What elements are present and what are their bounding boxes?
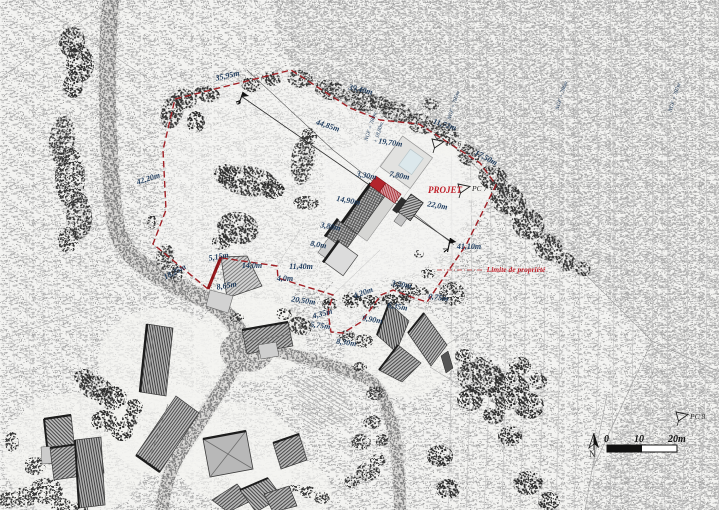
svg-text:11,40m: 11,40m <box>289 262 313 271</box>
svg-text:PC 8: PC 8 <box>689 412 705 421</box>
svg-text:N: N <box>589 449 596 459</box>
svg-text:14,0m: 14,0m <box>242 261 262 270</box>
svg-text:Limite de propriété: Limite de propriété <box>486 265 546 274</box>
svg-text:PC 7: PC 7 <box>471 184 487 193</box>
svg-text:4,0m: 4,0m <box>276 274 293 283</box>
svg-text:41,10m: 41,10m <box>456 242 481 251</box>
svg-text:PC 6: PC 6 <box>445 139 461 148</box>
svg-text:PROJET: PROJET <box>428 185 463 195</box>
svg-text:10: 10 <box>634 434 644 445</box>
svg-text:20m: 20m <box>667 434 686 445</box>
svg-text:0: 0 <box>604 434 609 445</box>
